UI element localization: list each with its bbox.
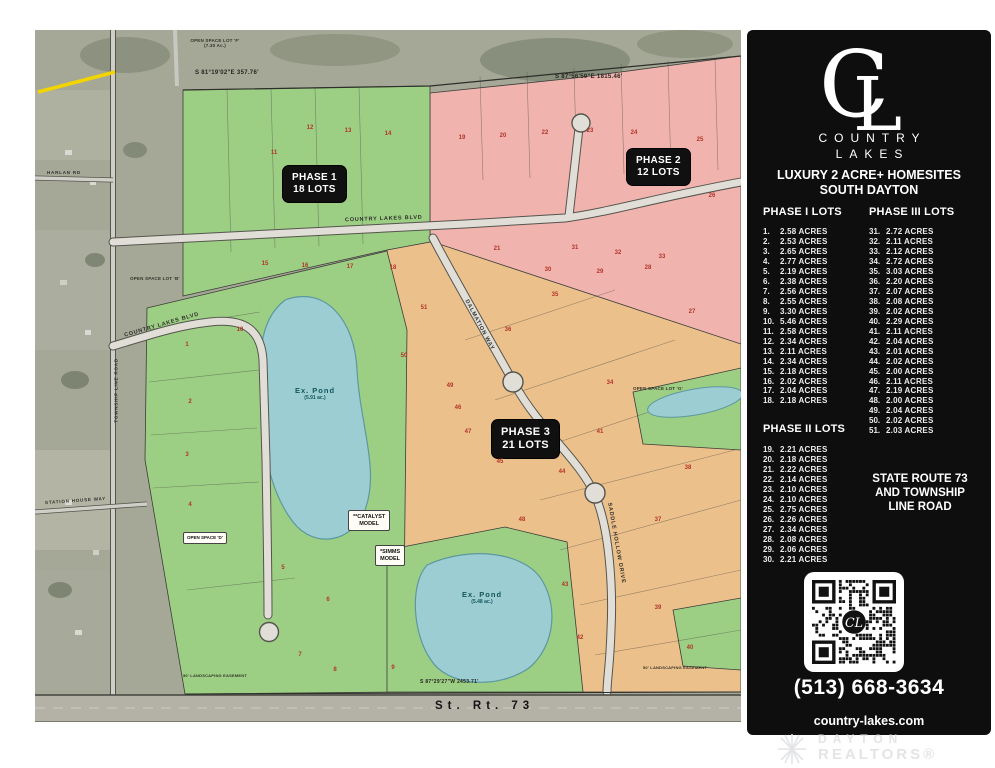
- lot-number: 10: [237, 327, 244, 333]
- bearing-top-right: S 87°56'59"E 1815.46': [555, 74, 622, 81]
- lot-list-row: 45.2.00 ACRES: [869, 366, 973, 376]
- phase1-map-label: PHASE 118 LOTS: [283, 166, 346, 202]
- lot-number: 18: [390, 265, 397, 271]
- easement-label-left: 50' LANDSCAPING EASEMENT: [183, 674, 247, 679]
- phase1-lot-list: 1.2.58 ACRES2.2.53 ACRES3.2.65 ACRES4.2.…: [763, 227, 867, 406]
- lot-number: 16: [302, 263, 309, 269]
- lot-number: 17: [347, 264, 354, 270]
- phase2-map-label: PHASE 212 LOTS: [627, 149, 690, 185]
- lot-list-row: 40.2.29 ACRES: [869, 316, 973, 326]
- road-label-state-route-73: St. Rt. 73: [435, 700, 534, 713]
- lot-number: 38: [685, 465, 692, 471]
- lot-number: 29: [597, 269, 604, 275]
- lot-number: 4: [188, 502, 191, 508]
- lot-list-row: 51.2.03 ACRES: [869, 426, 973, 436]
- lot-list-row: 27.2.34 ACRES: [763, 525, 867, 535]
- lot-list-row: 10.5.46 ACRES: [763, 316, 867, 326]
- lot-list-row: 5.2.19 ACRES: [763, 267, 867, 277]
- lot-list-row: 36.2.20 ACRES: [869, 277, 973, 287]
- pond-south: [415, 554, 552, 683]
- lot-number: 11: [271, 150, 277, 156]
- lot-list-row: 34.2.72 ACRES: [869, 257, 973, 267]
- lot-number: 2: [188, 399, 191, 405]
- lot-number: 3: [185, 452, 188, 458]
- realtors-text-line2: REALTORS®: [818, 747, 937, 762]
- qr-code: CL: [804, 572, 904, 672]
- lot-number: 23: [587, 128, 594, 134]
- lot-list-row: 44.2.02 ACRES: [869, 356, 973, 366]
- lot-list-row: 7.2.56 ACRES: [763, 287, 867, 297]
- lot-number: 36: [505, 327, 512, 333]
- lot-list-row: 41.2.11 ACRES: [869, 326, 973, 336]
- lot-number: 21: [494, 246, 501, 252]
- lot-list-row: 35.3.03 ACRES: [869, 267, 973, 277]
- bearing-bottom: S 87°29'27"W 2453.71': [420, 680, 479, 686]
- phase3-lot-list: 31.2.72 ACRES32.2.11 ACRES33.2.12 ACRES3…: [869, 227, 973, 436]
- lot-list-row: 4.2.77 ACRES: [763, 257, 867, 267]
- lot-number: 35: [552, 292, 559, 298]
- catalyst-model-label: **CATALYSTMODEL: [348, 510, 390, 531]
- open-space-f-label: OPEN SPACE LOT 'F'(7.30 Ac.): [165, 38, 265, 48]
- lot-number: 48: [519, 517, 526, 523]
- lot-number: 45: [497, 459, 504, 465]
- lot-list-row: 2.2.53 ACRES: [763, 237, 867, 247]
- lot-number: 40: [687, 645, 694, 651]
- lot-list-row: 6.2.38 ACRES: [763, 277, 867, 287]
- lot-number: 43: [562, 582, 569, 588]
- lot-number: 15: [262, 261, 269, 267]
- lot-number: 25: [697, 137, 704, 143]
- lot-number: 26: [709, 193, 716, 199]
- dayton-realtors-logo: DAYTON REALTORS®: [772, 732, 992, 766]
- lot-list-row: 33.2.12 ACRES: [869, 247, 973, 257]
- lot-list-row: 17.2.04 ACRES: [763, 386, 867, 396]
- lot-list-row: 31.2.72 ACRES: [869, 227, 973, 237]
- svg-text:CL: CL: [845, 615, 863, 630]
- brand-name-bottom: LAKES: [747, 147, 991, 161]
- green-area-southeast: [673, 598, 741, 670]
- lot-list-row: 12.2.34 ACRES: [763, 336, 867, 346]
- lot-list-row: 14.2.34 ACRES: [763, 356, 867, 366]
- lot-list-row: 13.2.11 ACRES: [763, 346, 867, 356]
- lot-number: 24: [631, 130, 638, 136]
- lot-number: 31: [572, 245, 579, 251]
- lot-list-row: 26.2.26 ACRES: [763, 515, 867, 525]
- lot-number: 12: [307, 125, 314, 131]
- lot-list-row: 46.2.11 ACRES: [869, 376, 973, 386]
- lot-list-row: 19.2.21 ACRES: [763, 445, 867, 455]
- location-text: STATE ROUTE 73 AND TOWNSHIP LINE ROAD: [851, 473, 989, 514]
- road-label-harlan: HARLAN RD: [47, 170, 81, 175]
- lot-number: 13: [345, 128, 352, 134]
- lot-list-row: 16.2.02 ACRES: [763, 376, 867, 386]
- country-lakes-monogram: C L: [809, 36, 929, 134]
- brand-name-top: COUNTRY: [747, 131, 991, 145]
- lot-number: 42: [577, 635, 584, 641]
- lot-number: 6: [326, 597, 329, 603]
- lot-list-row: 3.2.65 ACRES: [763, 247, 867, 257]
- tagline-line2: SOUTH DAYTON: [747, 183, 991, 197]
- road-label-township-line: TOWNSHIP LINE ROAD: [113, 333, 118, 423]
- lot-number: 51: [421, 305, 428, 311]
- simms-model-label: *SIMMSMODEL: [375, 545, 405, 566]
- realtors-text-line1: DAYTON: [818, 732, 937, 747]
- lot-list-row: 8.2.55 ACRES: [763, 297, 867, 307]
- lot-number: 37: [655, 517, 662, 523]
- lot-list-row: 11.2.58 ACRES: [763, 326, 867, 336]
- plat-map: OPEN SPACE LOT 'F'(7.30 Ac.) S 81°19'02"…: [35, 30, 741, 722]
- website-url: country-lakes.com: [747, 714, 991, 728]
- tagline-line1: LUXURY 2 ACRE+ HOMESITES: [747, 168, 991, 182]
- lot-number: 47: [465, 429, 472, 435]
- lot-list-row: 20.2.18 ACRES: [763, 455, 867, 465]
- pond-west-label: Ex. Pond(5.91 ac.): [273, 386, 357, 401]
- lot-number: 9: [391, 665, 394, 671]
- lot-number: 14: [385, 131, 392, 137]
- lot-number: 49: [447, 383, 454, 389]
- pond-south-label: Ex. Pond(5.48 ac.): [440, 590, 524, 605]
- lot-list-row: 49.2.04 ACRES: [869, 406, 973, 416]
- lot-list-row: 50.2.02 ACRES: [869, 416, 973, 426]
- lot-number: 7: [298, 652, 301, 658]
- lot-list-row: 1.2.58 ACRES: [763, 227, 867, 237]
- lot-list-row: 9.3.30 ACRES: [763, 307, 867, 317]
- phase1-list-title: PHASE I LOTS: [763, 206, 842, 218]
- lot-number: 20: [500, 133, 507, 139]
- lot-list-row: 48.2.00 ACRES: [869, 396, 973, 406]
- lot-number: 46: [455, 405, 462, 411]
- lot-number: 19: [459, 135, 466, 141]
- lot-list-row: 39.2.02 ACRES: [869, 307, 973, 317]
- phase3-map-label: PHASE 321 LOTS: [492, 420, 559, 458]
- lot-list-row: 47.2.19 ACRES: [869, 386, 973, 396]
- svg-text:L: L: [853, 62, 902, 134]
- realtors-emblem-icon: [772, 732, 812, 766]
- phase3-list-title: PHASE III LOTS: [869, 206, 954, 218]
- lot-number: 1: [185, 342, 188, 348]
- open-space-d-chip: OPEN SPACE 'D': [183, 532, 227, 544]
- open-space-b-label: OPEN SPACE LOT 'B': [130, 276, 180, 281]
- lot-number: 5: [281, 565, 284, 571]
- lot-number: 33: [659, 254, 666, 260]
- lot-list-row: 15.2.18 ACRES: [763, 366, 867, 376]
- lot-number: 27: [689, 309, 696, 315]
- lot-number: 41: [597, 429, 604, 435]
- lot-number: 8: [333, 667, 336, 673]
- lot-list-row: 18.2.18 ACRES: [763, 396, 867, 406]
- lot-list-row: 38.2.08 ACRES: [869, 297, 973, 307]
- easement-label-right: 50' LANDSCAPING EASEMENT: [643, 666, 707, 671]
- phone-number: (513) 668-3634: [747, 676, 991, 700]
- lot-number: 22: [542, 130, 549, 136]
- lot-list-row: 28.2.08 ACRES: [763, 534, 867, 544]
- lot-number: 34: [607, 380, 614, 386]
- lot-list-row: 32.2.11 ACRES: [869, 237, 973, 247]
- lot-list-row: 43.2.01 ACRES: [869, 346, 973, 356]
- lot-list-row: 29.2.06 ACRES: [763, 544, 867, 554]
- lot-number: 39: [655, 605, 662, 611]
- info-sidebar: C L COUNTRY LAKES LUXURY 2 ACRE+ HOMESIT…: [747, 30, 991, 735]
- lot-number: 30: [545, 267, 552, 273]
- open-space-g-label: OPEN SPACE LOT 'G': [633, 386, 683, 391]
- lot-number: 44: [559, 469, 566, 475]
- country-lakes-flyer: OPEN SPACE LOT 'F'(7.30 Ac.) S 81°19'02"…: [0, 0, 995, 768]
- lot-list-row: 37.2.07 ACRES: [869, 287, 973, 297]
- lot-list-row: 30.2.21 ACRES: [763, 554, 867, 564]
- lot-list-row: 42.2.04 ACRES: [869, 336, 973, 346]
- phase2-list-title: PHASE II LOTS: [763, 423, 845, 435]
- lot-number: 50: [401, 353, 408, 359]
- lot-number: 32: [615, 250, 622, 256]
- bearing-top-left: S 81°19'02"E 357.76': [195, 70, 259, 77]
- lot-number: 28: [645, 265, 652, 271]
